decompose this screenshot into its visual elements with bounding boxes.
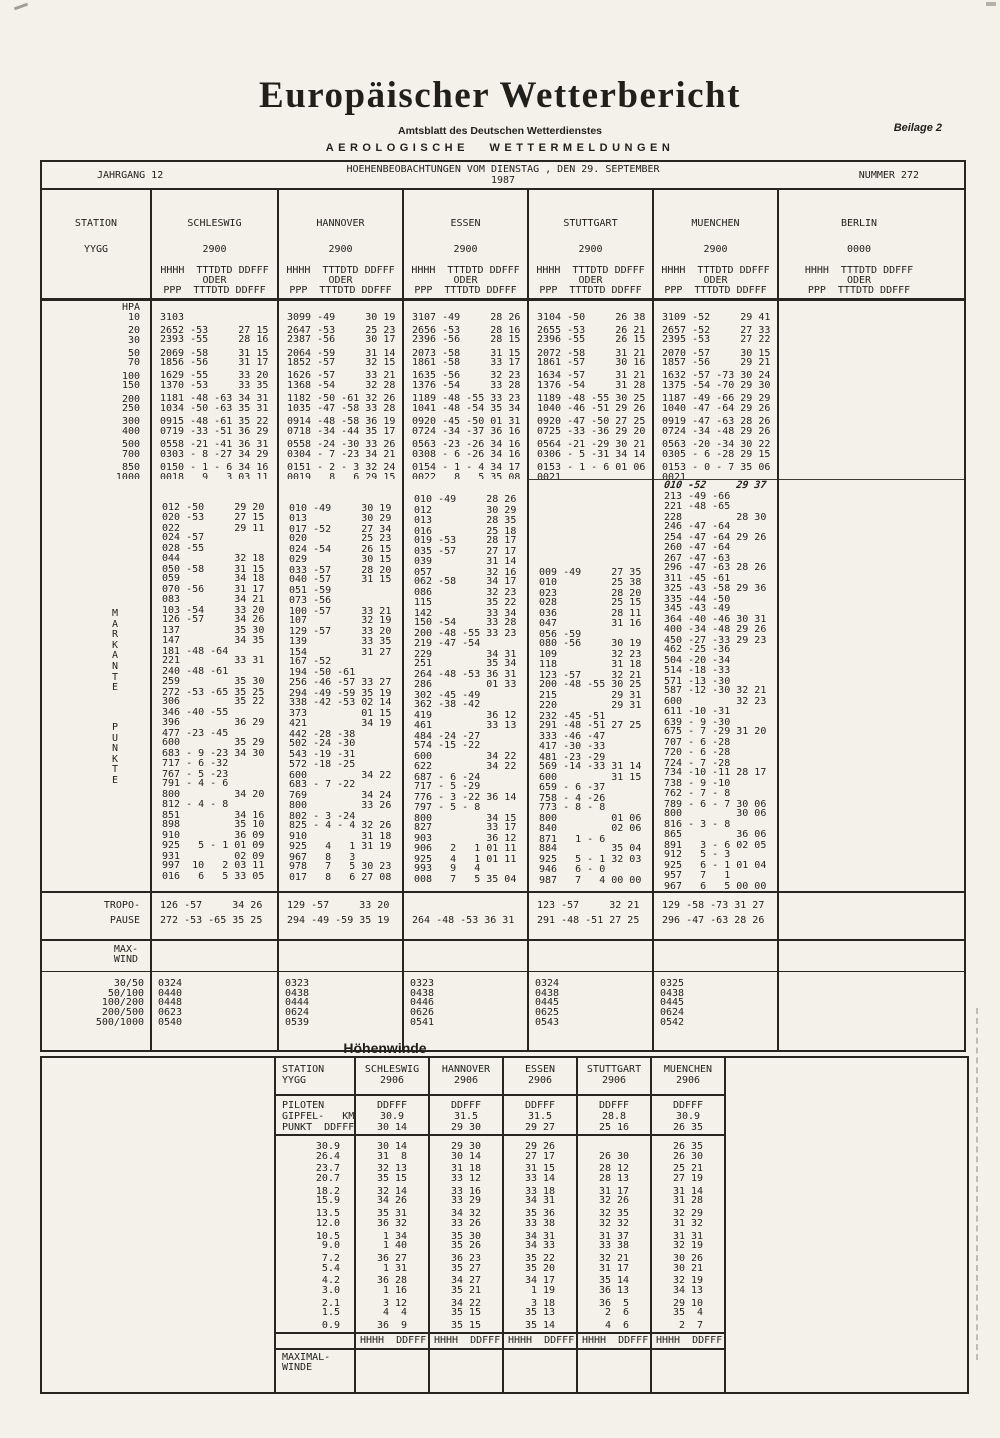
data-line: 50 (42, 349, 140, 359)
data-line: 600 35 29 (162, 738, 277, 748)
tropopause-cell-stuttgart: 123 -57 32 21291 -48 -51 27 25 (527, 893, 652, 939)
sig-line-group: 851 34 16898 35 10 (162, 811, 277, 830)
hw-station-header-stuttgart: STUTTGART2906 (576, 1058, 650, 1096)
data-line: 20.7 (276, 1174, 340, 1184)
data-line: 35 15 (430, 1321, 502, 1331)
data-line: 812 - 4 - 8 (162, 800, 277, 810)
sig-line-group: 123 -57 32 21200 -48 -55 30 25 (539, 671, 652, 690)
data-line: 29 27 (504, 1122, 576, 1133)
pressure-column-berlin (777, 301, 964, 479)
sig-line-group: 010 -49 30 19013 30 29 (289, 504, 402, 523)
hw-right-tail (724, 1334, 967, 1350)
sig-column-berlin (777, 479, 964, 891)
hw-left-spacer (42, 1136, 274, 1334)
hw-station-yygg-label: STATIONYYGG (274, 1058, 354, 1096)
sig-column-schleswig: 012 -50 29 20020 -53 27 15022 29 11024 -… (150, 479, 277, 891)
pressure-column-essen: 3107 -49 28 262656 -53 28 162396 -56 28 … (402, 301, 527, 479)
data-line: WINDE (282, 1363, 354, 1373)
data-line: 1040 -46 -51 29 26 (537, 404, 652, 414)
data-line: 1376 -54 31 28 (537, 381, 652, 391)
maxwind-empty-cell (277, 941, 402, 971)
data-line: 0304 - 7 -23 34 21 (287, 450, 402, 460)
data-line: TROPO- (42, 901, 140, 911)
tropopause-cell-schleswig: 126 -57 34 26272 -53 -65 35 25 (150, 893, 277, 939)
data-line: 30 (42, 336, 140, 346)
data-line: ESSEN (404, 218, 527, 229)
data-line: 865 36 06 (664, 830, 777, 840)
data-line: 013 28 35 (414, 516, 527, 526)
sig-line-group: 477 -23 -45600 35 29 (162, 729, 277, 748)
data-line: 1861 -57 30 16 (537, 358, 652, 368)
beilage-label: Beilage 2 (894, 122, 942, 134)
sig-line-group: 036 28 11047 31 16 (539, 609, 652, 628)
sig-line-group: 050 -58 31 15059 34 18 (162, 565, 277, 584)
data-line: 659 - 6 -37 (539, 783, 652, 793)
data-line: 1041 -48 -54 35 34 (412, 404, 527, 414)
station-header-berlin: BERLIN0000HHHH TTTDTD DDFFFODERPPP TTTDT… (777, 190, 964, 298)
data-line: 1.5 (276, 1308, 340, 1318)
data-line: 047 31 16 (539, 619, 652, 629)
data-line: 35 13 (504, 1308, 576, 1318)
sig-line-group: 800 34 20812 - 4 - 8 (162, 790, 277, 809)
maxwind-empty-cell (527, 941, 652, 971)
data-line: 36 9 (356, 1321, 428, 1331)
hw-piloten-schleswig: DDFFF30.930 14 (354, 1096, 428, 1136)
hw-station-header-hannover: HANNOVER2906 (428, 1058, 502, 1096)
sig-line-group: 010 -52 29 37 (664, 481, 777, 491)
data-line: 2 6 (578, 1308, 650, 1318)
sig-line-group: 057 32 16062 -58 34 17 (414, 568, 527, 587)
station-header-stuttgart: STUTTGART2900HHHH TTTDTD DDFFFODERPPP TT… (527, 190, 652, 298)
sig-line-group: 600 34 22683 - 7 -22 (289, 771, 402, 790)
data-line: 33 14 (504, 1174, 576, 1184)
data-line (785, 1008, 964, 1018)
data-line: 0724 -34 -37 36 16 (412, 427, 527, 437)
data-line: 020 25 23 (289, 534, 402, 544)
data-line: 12.0 (276, 1219, 340, 1229)
data-line: 0540 (158, 1018, 277, 1028)
data-line: 717 - 6 -32 (162, 759, 277, 769)
data-line: 27 19 (652, 1174, 724, 1184)
sig-line-group: 035 -57 27 17039 31 14 (414, 547, 527, 566)
data-line: 28.8 (578, 1111, 650, 1122)
station-header-muenchen: MUENCHEN2900HHHH TTTDTD DDFFFODERPPP TTT… (652, 190, 777, 298)
data-line: 925 4 1 31 19 (289, 842, 402, 852)
data-line: 978 7 5 30 23 (289, 862, 402, 872)
data-line (787, 313, 964, 323)
data-line: 3104 -50 26 38 (537, 313, 652, 323)
data-line: 28 13 (578, 1174, 650, 1184)
sig-line-group: 769 34 24800 33 26 (289, 791, 402, 810)
sig-column-stuttgart: 009 -49 27 35010 25 38023 28 20028 25 15… (527, 479, 652, 891)
hw-left-spacer (42, 1334, 274, 1350)
vertical-label-markante: M A R K A N T E (112, 609, 118, 694)
data-line: 800 33 26 (289, 801, 402, 811)
data-line: DDFFF (356, 1100, 428, 1111)
data-line: 0306 - 5 -31 34 14 (537, 450, 652, 460)
scan-artifact (986, 2, 996, 6)
data-line: 167 -52 (289, 657, 402, 667)
data-line: 1 16 (356, 1286, 428, 1296)
sig-line-group: 181 -48 -64221 33 31 (162, 647, 277, 666)
data-line (787, 440, 964, 450)
data-line: PUNKT DDFFF (282, 1122, 354, 1133)
data-line: 884 35 04 (539, 844, 652, 854)
data-line: 1857 -56 29 21 (662, 358, 777, 368)
maxwind-values-essen: 03230438044606260541 (402, 972, 527, 1050)
sig-line-group: 800 34 15827 33 17 (414, 814, 527, 833)
hw-station-header-schleswig: SCHLESWIG2906 (354, 1058, 428, 1096)
data-line: 2906 (578, 1075, 650, 1086)
hw-maximal-empty-cell (576, 1350, 650, 1392)
data-line: 840 02 06 (539, 824, 652, 834)
sig-line-group: 931 02 09997 10 2 03 11 (162, 852, 277, 871)
sig-line-group: 012 30 29013 28 35 (414, 506, 527, 525)
sig-line-group: 267 -47 -63296 -47 -63 28 26 (664, 554, 777, 573)
sig-line-group: 903 36 12906 2 1 01 11 (414, 834, 527, 853)
markante-punkte-label-cell: M A R K A N T EP U N K T E (42, 479, 150, 891)
data-line: PPP TTTDTD DDFFF (529, 286, 652, 296)
sig-line-group: 683 - 9 -23 34 30717 - 6 -32 (162, 749, 277, 768)
sig-line-group: 024 -54 26 15029 30 15 (289, 545, 402, 564)
data-line: 083 34 21 (162, 595, 277, 605)
data-line: 30 21 (652, 1264, 724, 1274)
hw-bottom-header-muenchen: HHHH DDFFF (650, 1334, 724, 1350)
data-line: 0719 -33 -51 36 29 (160, 427, 277, 437)
sig-line-group: 194 -50 -61256 -46 -57 33 27 (289, 668, 402, 687)
data-line: 572 -18 -25 (289, 760, 402, 770)
hw-piloten-labels: PILOTENGIPFEL- KMPUNKT DDFFF (274, 1096, 354, 1136)
data-line: 126 -57 34 26 (160, 901, 277, 911)
data-line: 3099 -49 30 19 (287, 313, 402, 323)
data-line: 0543 (535, 1018, 652, 1028)
data-line: 33 29 (430, 1196, 502, 1206)
data-line: 906 2 1 01 11 (414, 844, 527, 854)
data-line: 059 34 18 (162, 574, 277, 584)
data-line: 400 (42, 427, 140, 437)
sig-line-group: 129 -57 33 20139 33 35 (289, 627, 402, 646)
data-line: 291 -48 -51 27 25 (539, 721, 652, 731)
data-line (787, 404, 964, 414)
hw-station-header-essen: ESSEN2906 (502, 1058, 576, 1096)
sig-line-group: 600 34 22622 34 22 (414, 752, 527, 771)
data-line: 0305 - 6 -28 29 15 (662, 450, 777, 460)
pressure-column-muenchen: 3109 -52 29 412657 -52 27 332395 -53 27 … (652, 301, 777, 479)
data-line: 4 6 (578, 1321, 650, 1331)
data-line: 019 -53 28 17 (414, 536, 527, 546)
data-line: 791 - 4 - 6 (162, 779, 277, 789)
data-line: 013 30 29 (289, 514, 402, 524)
tropopause-cell-hannover: 129 -57 33 20294 -49 -59 35 19 (277, 893, 402, 939)
hw-piloten-essen: DDFFF31.529 27 (502, 1096, 576, 1136)
data-line: 4 4 (356, 1308, 428, 1318)
data-line: 20 (42, 326, 140, 336)
data-line: 123 -57 32 21 (537, 901, 652, 911)
sig-line-group: 373 01 15421 34 19 (289, 709, 402, 728)
data-line: 31.5 (430, 1111, 502, 1122)
data-line: 502 -24 -30 (289, 739, 402, 749)
hw-maximal-label: MAXIMAL-WINDE (274, 1350, 354, 1392)
data-line: 0724 -34 -48 29 26 (662, 427, 777, 437)
data-line: 773 - 8 - 8 (539, 803, 652, 813)
data-line: 957 7 1 (664, 871, 777, 881)
data-line: 264 -48 -53 36 31 (412, 916, 527, 926)
data-line: 32 32 (578, 1219, 650, 1229)
data-line: 338 -42 -53 02 14 (289, 698, 402, 708)
sig-line-group: 100 -57 33 21107 32 19 (289, 607, 402, 626)
data-line: 0000 (779, 245, 939, 255)
data-line: 898 35 10 (162, 820, 277, 830)
hw-station-header-band: STATIONYYGGSCHLESWIG2906HANNOVER2906ESSE… (42, 1058, 967, 1096)
sig-line-group: 891 3 - 6 02 05912 5 - 3 (664, 841, 777, 860)
data-line: 1034 -50 -63 35 31 (160, 404, 277, 414)
data-line: 010 -52 29 37 (663, 481, 777, 491)
data-line: SCHLESWIG (356, 1064, 428, 1075)
data-line: 118 31 18 (539, 660, 652, 670)
sig-line-group: 294 -49 -59 35 19338 -42 -53 02 14 (289, 689, 402, 708)
data-line: 2900 (279, 245, 402, 255)
sig-line-group: 789 - 6 - 7 30 06800 30 06 (664, 800, 777, 819)
data-line: 1 31 (356, 1264, 428, 1274)
sig-line-group: 802 - 3 -24825 - 4 - 4 32 26 (289, 812, 402, 831)
sig-line-group: 016 25 18019 -53 28 17 (414, 527, 527, 546)
data-line: 259 35 30 (162, 677, 277, 687)
main-table: JAHRGANG 12 HOEHENBEOBACHTUNGEN VOM DIEN… (40, 160, 966, 1052)
data-line: 291 -48 -51 27 25 (537, 916, 652, 926)
maxwind-label-band: MAX-WIND (42, 941, 964, 972)
data-line: 024 -57 (162, 533, 277, 543)
tropopause-cell-muenchen: 129 -58 -73 31 27296 -47 -63 28 26 (652, 893, 777, 939)
data-line: HHHH DDFFF (578, 1334, 650, 1347)
data-line: 296 -47 -63 28 26 (662, 916, 777, 926)
observation-label: HOEHENBEOBACHTUNGEN VOM DIENSTAG , DEN 2… (342, 164, 664, 186)
hw-right-tail (724, 1136, 967, 1334)
data-line: 946 6 - 0 (539, 865, 652, 875)
data-line: PPP TTTDTD DDFFF (152, 286, 277, 296)
station-header-schleswig: SCHLESWIG2900HHHH TTTDTD DDFFFODERPPP TT… (150, 190, 277, 298)
station-header-hannover: HANNOVER2900HHHH TTTDTD DDFFFODERPPP TTT… (277, 190, 402, 298)
hw-left-spacer (42, 1350, 274, 1392)
data-line (787, 394, 964, 404)
data-line: 362 -38 -42 (414, 700, 527, 710)
data-line: WIND (42, 955, 138, 965)
sig-line-group: 776 - 3 -22 36 14797 - 5 - 8 (414, 793, 527, 812)
data-line: PILOTEN (282, 1100, 354, 1111)
sig-line-group: 925 4 1 01 11993 9 4 (414, 855, 527, 874)
page-subtitle: Amtsblatt des Deutschen Wetterdienstes (0, 125, 1000, 137)
sig-line-group: 016 6 5 33 05 (162, 872, 277, 882)
data-line: 587 -12 -30 32 21 (664, 686, 777, 696)
data-line: 200 -48 -55 30 25 (539, 680, 652, 690)
sig-line-group: 103 -54 33 20126 -57 34 26 (162, 606, 277, 625)
data-line (787, 335, 964, 345)
data-line: 2396 -55 26 15 (537, 335, 652, 345)
data-line: 251 35 34 (414, 659, 527, 669)
tropopause-band: TROPO-PAUSE126 -57 34 26272 -53 -65 35 2… (42, 891, 964, 941)
data-line: 417 -30 -33 (539, 742, 652, 752)
data-line: 32 26 (578, 1196, 650, 1206)
data-line: 912 5 - 3 (664, 850, 777, 860)
data-line: 25 16 (578, 1122, 650, 1133)
data-line: 15.9 (276, 1196, 340, 1206)
data-line: HANNOVER (279, 218, 402, 229)
data-line: 31 28 (652, 1196, 724, 1206)
data-line: 30.9 (356, 1111, 428, 1122)
hw-left-spacer (42, 1096, 274, 1136)
data-line: 997 10 2 03 11 (162, 861, 277, 871)
data-line: 1 40 (356, 1241, 428, 1251)
data-line: 30 14 (430, 1152, 502, 1162)
data-line: 35 26 (430, 1241, 502, 1251)
data-line: 2900 (529, 245, 652, 255)
hw-piloten-hannover: DDFFF31.529 30 (428, 1096, 502, 1136)
sig-line-group: 816 - 3 - 8865 36 06 (664, 820, 777, 839)
data-line: 107 32 19 (289, 616, 402, 626)
data-line: 35 21 (430, 1286, 502, 1296)
sig-line-group: 504 -20 -34514 -18 -33 (664, 656, 777, 675)
sig-line-group: 017 8 6 27 08 (289, 873, 402, 883)
data-line: 020 -53 27 15 (162, 513, 277, 523)
data-line: HPA (42, 303, 140, 313)
data-line: 26 30 (578, 1152, 650, 1162)
data-line (787, 371, 964, 381)
sig-line-group: 987 7 4 00 00 (539, 876, 652, 886)
sig-line-group: 442 -28 -38502 -24 -30 (289, 730, 402, 749)
sig-line-group: 154 31 27167 -52 (289, 648, 402, 667)
data-line: 1375 -54 -70 29 30 (662, 381, 777, 391)
data-line: ESSEN (504, 1064, 576, 1075)
data-line: 700 (42, 450, 140, 460)
sig-line-group: 017 -52 27 34020 25 23 (289, 525, 402, 544)
data-line: 33 38 (504, 1219, 576, 1229)
data-line: 34 26 (356, 1196, 428, 1206)
page-title: Europäischer Wetterbericht (0, 74, 1000, 117)
data-line: 073 -56 (289, 596, 402, 606)
data-line: 126 -57 34 26 (162, 615, 277, 625)
sig-line-group: 346 -40 -55396 36 29 (162, 708, 277, 727)
sig-line-group: 137 35 30147 34 35 (162, 626, 277, 645)
maxwind-label-cell: MAX-WIND (42, 941, 150, 971)
data-line: 36 32 (356, 1219, 428, 1229)
sig-line-group: 009 -49 27 35010 25 38 (539, 568, 652, 587)
data-line: 993 9 4 (414, 864, 527, 874)
data-line: 040 -57 31 15 (289, 575, 402, 585)
hw-maximal-band: MAXIMAL-WINDE (42, 1350, 967, 1392)
data-line: BERLIN (779, 218, 939, 229)
data-line: 35 15 (356, 1174, 428, 1184)
data-line (787, 463, 964, 473)
data-line: 31 8 (356, 1152, 428, 1162)
sig-line-group: 600 32 23611 -10 -31 (664, 697, 777, 716)
sig-line-group: 086 32 23115 35 22 (414, 588, 527, 607)
sig-column-muenchen: 010 -52 29 37213 -49 -66221 -48 -65228 2… (652, 479, 777, 891)
hw-station-header-muenchen: MUENCHEN2906 (650, 1058, 724, 1096)
data-line: 0718 -34 -44 35 17 (287, 427, 402, 437)
data-line: 028 25 15 (539, 598, 652, 608)
data-line: 044 32 18 (162, 554, 277, 564)
data-line: 2395 -53 27 22 (662, 335, 777, 345)
sig-line-group: 109 32 23118 31 18 (539, 650, 652, 669)
maxwind-values-berlin (777, 972, 964, 1050)
sig-line-group: 028 -55044 32 18 (162, 544, 277, 563)
data-line: 2906 (652, 1075, 724, 1086)
data-line: 33 38 (578, 1241, 650, 1251)
hw-left-spacer (42, 1058, 274, 1096)
data-line: 26.4 (276, 1152, 340, 1162)
sig-line-group: 272 -53 -65 35 25306 35 22 (162, 688, 277, 707)
nummer-label: NUMMER 272 (664, 170, 964, 181)
maxwind-values-schleswig: 03240440044806230540 (150, 972, 277, 1050)
sig-line-group: 484 -24 -27574 -15 -22 (414, 732, 527, 751)
sig-line-group: 419 36 12461 33 13 (414, 711, 527, 730)
data-line: 574 -15 -22 (414, 741, 527, 751)
data-line: 029 30 15 (289, 555, 402, 565)
data-line: 115 35 22 (414, 598, 527, 608)
sig-line-group: 767 - 5 -23791 - 4 - 6 (162, 770, 277, 789)
data-line: 3103 (160, 313, 277, 323)
data-line (787, 450, 964, 460)
sig-line-group: 010 -49 28 26 (414, 495, 527, 505)
data-line (787, 358, 964, 368)
hw-right-tail (724, 1350, 967, 1392)
data-line: 967 6 5 00 00 (664, 882, 777, 892)
hw-wind-column-stuttgart: 26 3028 1228 1331 1732 2632 3532 3231 37… (576, 1136, 650, 1334)
sig-line-group: 240 -48 -61259 35 30 (162, 667, 277, 686)
data-line: 31.5 (504, 1111, 576, 1122)
data-line: 129 -58 -73 31 27 (662, 901, 777, 911)
data-line: 150 -54 33 28 (414, 618, 527, 628)
maxwind-row-labels: 30/5050/100100/200200/500500/1000 (42, 972, 150, 1050)
data-line: 260 -47 -64 (664, 543, 777, 553)
data-line: 800 30 06 (664, 809, 777, 819)
sig-line-group: 687 - 6 -24717 - 5 -29 (414, 773, 527, 792)
sig-line-group: 543 -19 -31572 -18 -25 (289, 750, 402, 769)
data-line: 1040 -47 -64 29 26 (662, 404, 777, 414)
data-line: 34 33 (504, 1241, 576, 1251)
data-line: 30.9 (652, 1111, 724, 1122)
maxwind-empty-cell (777, 941, 964, 971)
data-line: 36 13 (578, 1286, 650, 1296)
data-line (787, 901, 964, 911)
sig-line-group: 229 34 31251 35 34 (414, 650, 527, 669)
data-line: PPP TTTDTD DDFFF (654, 286, 777, 296)
sig-line-group: 142 33 34150 -54 33 28 (414, 609, 527, 628)
maxwind-rows-band: 30/5050/100100/200200/500500/10000324044… (42, 972, 964, 1050)
maxwind-empty-cell (402, 941, 527, 971)
sig-line-group: 033 -57 28 20040 -57 31 15 (289, 566, 402, 585)
data-line (412, 901, 527, 911)
data-line: 514 -18 -33 (664, 666, 777, 676)
data-line: 039 31 14 (414, 557, 527, 567)
data-line: 3109 -52 29 41 (662, 313, 777, 323)
data-line: MUENCHEN (652, 1064, 724, 1075)
data-line: 0539 (285, 1018, 402, 1028)
data-line: PPP TTTDTD DDFFF (404, 286, 527, 296)
data-line: GIPFEL- KM (282, 1111, 354, 1122)
hw-wind-rows-band: 30.926.423.720.718.215.913.512.010.5 9.0… (42, 1136, 967, 1334)
data-line: 925 5 - 1 01 09 (162, 841, 277, 851)
data-line: HHHH DDFFF (652, 1334, 724, 1347)
data-line: HHHH DDFFF (356, 1334, 428, 1347)
hw-piloten-stuttgart: DDFFF28.825 16 (576, 1096, 650, 1136)
data-line: HHHH DDFFF (430, 1334, 502, 1347)
sig-line-group: 925 5 - 1 32 03946 6 - 0 (539, 855, 652, 874)
hpa-label-column: HPA1020305070100150200250300400500700850… (42, 301, 150, 479)
sig-line-group: 925 6 - 1 01 04957 7 1 (664, 861, 777, 880)
hw-maximal-empty-cell (650, 1350, 724, 1392)
hw-bottom-header-essen: HHHH DDFFF (502, 1334, 576, 1350)
hw-wind-column-muenchen: 26 3526 3025 2127 1931 1431 2832 2931 32… (650, 1136, 724, 1334)
